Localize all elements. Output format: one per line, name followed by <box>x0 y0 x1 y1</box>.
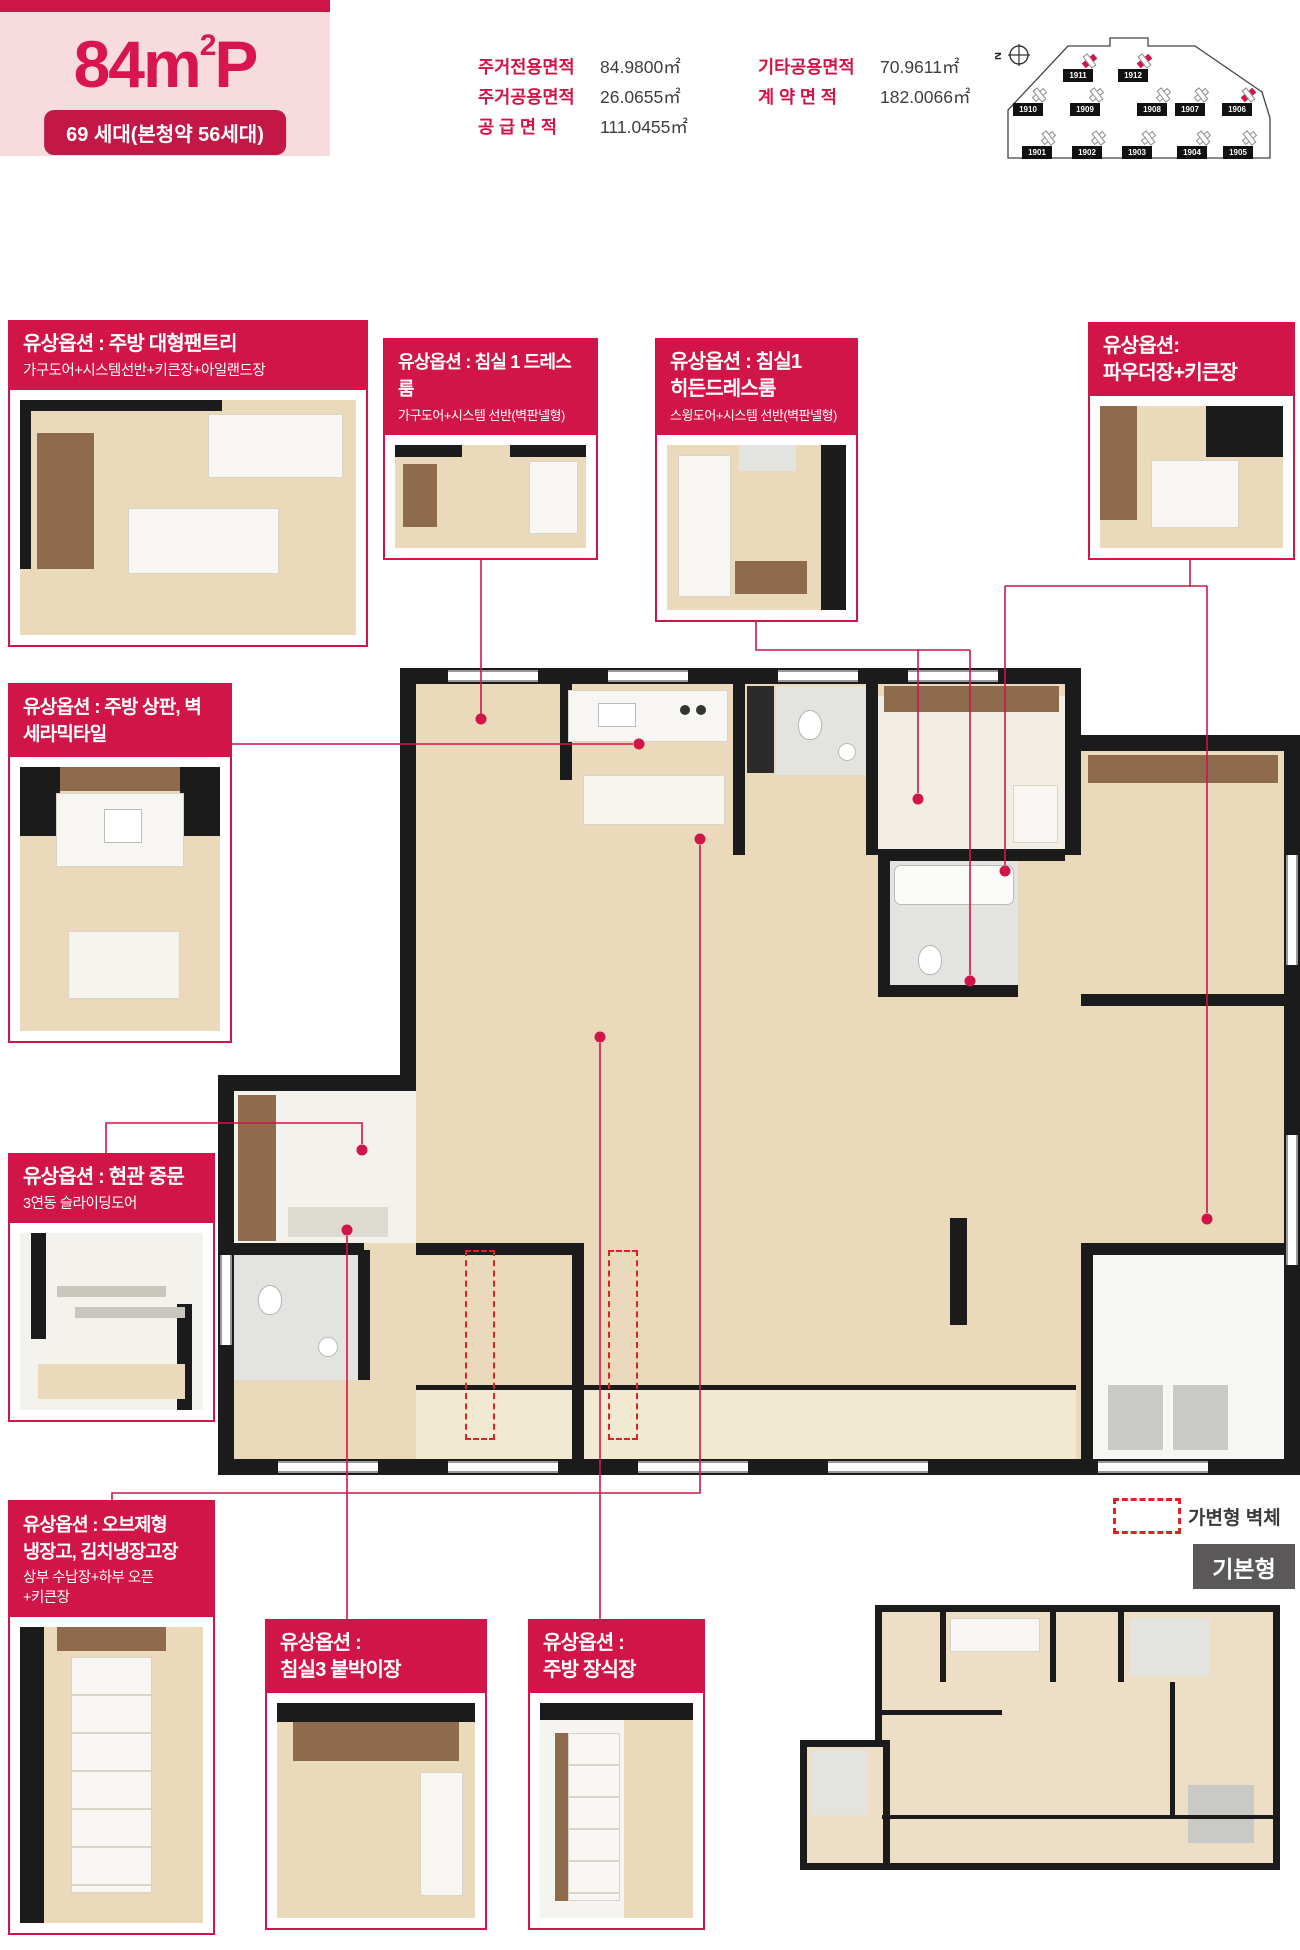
option-subtitle: 스윙도어+시스템 선반(벽판넬형) <box>670 406 843 426</box>
wall <box>572 1243 584 1459</box>
window <box>1098 1461 1208 1473</box>
option-box-kitchen-ceramic-tile: 유상옵션 : 주방 상판, 벽 세라믹타일 <box>8 683 232 1043</box>
spec-value: 26.0655㎡ <box>600 87 681 107</box>
option-plan-image <box>667 445 846 610</box>
option-box-kitchen-pantry: 유상옵션 : 주방 대형팬트리 가구도어+시스템선반+키큰장+아일랜드장 <box>8 320 368 647</box>
option-plan-image <box>395 445 586 548</box>
option-box-fridge-cabinet: 유상옵션 : 오브제형 냉장고, 김치냉장고장 상부 수납장+하부 오픈 +키큰… <box>8 1500 215 1935</box>
main-floor-plan <box>218 655 1300 1490</box>
option-box-bedroom1-hidden-dressroom: 유상옵션 : 침실1 히든드레스룸 스윙도어+시스템 선반(벽판넬형) <box>655 338 858 622</box>
option-title: 유상옵션 : <box>280 1630 472 1657</box>
sink <box>838 743 856 761</box>
option-header: 유상옵션: 파우더장+키큰장 <box>1090 324 1293 396</box>
building-icon <box>1155 86 1171 102</box>
wall <box>1081 1255 1093 1459</box>
building-icon <box>1081 52 1097 68</box>
bathtub <box>894 865 1014 905</box>
option-subtitle: 가구도어+시스템선반+키큰장+아일랜드장 <box>23 361 353 381</box>
building-number: 1905 <box>1223 146 1253 159</box>
balcony-floor <box>416 1390 1076 1459</box>
wall <box>878 849 1065 861</box>
wall <box>1081 994 1284 1006</box>
option-subtitle: +키큰장 <box>23 1588 200 1608</box>
option-subtitle: 가구도어+시스템 선반(벽판넬형) <box>398 406 583 426</box>
powder-cabinet <box>1013 785 1058 843</box>
building-number: 1908 <box>1137 103 1167 116</box>
unit-type-title: 84m2P <box>0 14 330 114</box>
appliance <box>1108 1385 1163 1450</box>
shoe-closet <box>238 1095 276 1241</box>
toilet <box>918 945 942 975</box>
page: 84m2P 69 세대(본청약 56세대) 주거전용면적84.9800㎡ 주거공… <box>0 0 1300 1950</box>
spec-value: 111.0455㎡ <box>600 117 688 137</box>
wall <box>882 1710 1002 1715</box>
compass-n-label: N <box>995 52 1004 60</box>
wall <box>1050 1612 1056 1682</box>
option-box-bedroom1-dressroom: 유상옵션 : 침실 1 드레스룸 가구도어+시스템 선반(벽판넬형) <box>383 338 598 560</box>
option-title: 파우더장+키큰장 <box>1103 360 1280 387</box>
wall <box>866 684 878 855</box>
window <box>220 1255 232 1345</box>
option-title: 유상옵션 : 오브제형 <box>23 1511 200 1538</box>
appliance <box>1173 1385 1228 1450</box>
unit-size-sup: 2 <box>200 31 215 61</box>
option-header: 유상옵션 : 오브제형 냉장고, 김치냉장고장 상부 수납장+하부 오픈 +키큰… <box>10 1502 213 1617</box>
wall <box>218 1075 416 1091</box>
option-plan-image <box>20 400 356 635</box>
option-title: 주방 장식장 <box>543 1657 690 1684</box>
building-icon <box>1088 86 1104 102</box>
base-floor-plan <box>800 1590 1295 1935</box>
window <box>448 670 538 682</box>
wall <box>1065 735 1300 751</box>
spec-value: 70.9611㎡ <box>880 57 959 77</box>
building-icon <box>1040 129 1056 145</box>
option-header: 유상옵션 : 침실1 히든드레스룸 스윙도어+시스템 선반(벽판넬형) <box>657 340 856 435</box>
spec-label: 주거공용면적 <box>478 84 600 109</box>
wall <box>1081 1243 1284 1255</box>
wall <box>878 861 890 991</box>
unit-type-panel: 84m2P 69 세대(본청약 56세대) <box>0 0 330 156</box>
option-title: 세라믹타일 <box>23 721 217 748</box>
building-number: 1904 <box>1177 146 1207 159</box>
movable-wall-legend-icon <box>1113 1498 1181 1534</box>
building-number: 1912 <box>1118 69 1148 82</box>
wall <box>234 1243 364 1255</box>
kitchen-counter <box>568 690 728 742</box>
entry-mat <box>288 1207 388 1237</box>
wall <box>1284 735 1300 1475</box>
sink <box>318 1337 338 1357</box>
unit-size: 84m <box>74 26 200 102</box>
kitchen-island <box>583 775 725 825</box>
spec-row: 계 약 면 적182.0066㎡ <box>758 84 971 109</box>
unit-plan-code: P <box>214 26 256 102</box>
building-number: 1911 <box>1063 69 1093 82</box>
option-title: 유상옵션: <box>1103 333 1280 360</box>
closet-cabinet <box>1088 755 1278 783</box>
cooktop-burner <box>696 705 706 715</box>
window <box>638 1461 748 1473</box>
wall <box>1065 684 1081 855</box>
wall <box>1170 1682 1175 1817</box>
option-header: 유상옵션 : 주방 상판, 벽 세라믹타일 <box>10 685 230 757</box>
wall <box>940 1612 946 1682</box>
spec-label: 주거전용면적 <box>478 54 600 79</box>
spec-label: 기타공용면적 <box>758 54 880 79</box>
building-icon <box>1193 86 1209 102</box>
option-subtitle: 상부 수납장+하부 오픈 <box>23 1568 200 1588</box>
option-subtitle: 3연동 슬라이딩도어 <box>23 1194 200 1214</box>
wall <box>358 1250 370 1380</box>
building-number: 1901 <box>1022 146 1052 159</box>
option-plan-image <box>540 1703 693 1918</box>
spec-value: 84.9800㎡ <box>600 57 681 77</box>
wall <box>733 684 745 855</box>
wall <box>416 1243 584 1255</box>
wall <box>400 668 416 1091</box>
building-number: 1909 <box>1070 103 1100 116</box>
kitchen-sink <box>598 703 636 727</box>
option-box-kitchen-display-cabinet: 유상옵션 : 주방 장식장 <box>528 1619 705 1930</box>
building-icon <box>1140 129 1156 145</box>
building-icon <box>1241 129 1257 145</box>
window <box>1286 1135 1298 1265</box>
building-icon <box>1090 129 1106 145</box>
wall <box>950 1218 967 1325</box>
base-plan-balcony-line <box>882 1815 1274 1819</box>
building-number: 1902 <box>1072 146 1102 159</box>
option-header: 유상옵션 : 현관 중문 3연동 슬라이딩도어 <box>10 1155 213 1223</box>
window <box>1286 855 1298 965</box>
building-icon <box>1136 52 1152 68</box>
spec-label: 공 급 면 적 <box>478 114 600 139</box>
building-icon <box>1195 129 1211 145</box>
base-plan-bathroom <box>812 1750 867 1815</box>
spec-row: 주거공용면적26.0655㎡ <box>478 84 681 109</box>
base-plan-utility <box>1188 1785 1254 1843</box>
spec-value: 182.0066㎡ <box>880 87 971 107</box>
building-number: 1906 <box>1222 103 1252 116</box>
option-title: 유상옵션 : 주방 상판, 벽 <box>23 694 217 721</box>
building-icon <box>1031 86 1047 102</box>
building-icon <box>1240 86 1256 102</box>
option-title: 히든드레스룸 <box>670 376 843 403</box>
option-title: 유상옵션 : 침실 1 드레스룸 <box>398 349 583 403</box>
site-plan: N 1911 1912 1910 1909 1908 1907 1906 190… <box>995 20 1300 170</box>
accent-top-bar <box>0 0 330 12</box>
window <box>908 670 998 682</box>
spec-row: 공 급 면 적111.0455㎡ <box>478 114 688 139</box>
option-title: 유상옵션 : <box>543 1630 690 1657</box>
option-plan-image <box>20 1627 203 1923</box>
spec-row: 기타공용면적70.9611㎡ <box>758 54 959 79</box>
building-number: 1903 <box>1122 146 1152 159</box>
base-plan-kitchen-counter <box>950 1618 1040 1652</box>
option-header: 유상옵션 : 주방 장식장 <box>530 1621 703 1693</box>
option-title: 유상옵션 : 주방 대형팬트리 <box>23 331 353 358</box>
movable-wall-legend-label: 가변형 벽체 <box>1188 1503 1281 1530</box>
option-header: 유상옵션 : 주방 대형팬트리 가구도어+시스템선반+키큰장+아일랜드장 <box>10 322 366 390</box>
option-plan-image <box>1100 406 1283 548</box>
base-plan-bathroom <box>1130 1618 1210 1676</box>
option-box-bedroom3-closet: 유상옵션 : 침실3 붙박이장 <box>265 1619 487 1930</box>
option-plan-image <box>277 1703 475 1918</box>
option-plan-image <box>20 1233 203 1410</box>
window <box>448 1461 558 1473</box>
option-title: 침실3 붙박이장 <box>280 1657 472 1684</box>
window <box>828 1461 928 1473</box>
option-plan-image <box>20 767 220 1031</box>
option-header: 유상옵션 : 침실 1 드레스룸 가구도어+시스템 선반(벽판넬형) <box>385 340 596 435</box>
window <box>608 670 688 682</box>
option-header: 유상옵션 : 침실3 붙박이장 <box>267 1621 485 1693</box>
wall <box>878 985 1018 997</box>
bathroom-floor <box>234 1255 358 1380</box>
option-box-powder-tall-cabinet: 유상옵션: 파우더장+키큰장 <box>1088 322 1295 560</box>
option-title: 유상옵션 : 현관 중문 <box>23 1164 200 1191</box>
base-plan-label: 기본형 <box>1193 1544 1295 1589</box>
option-box-entry-door: 유상옵션 : 현관 중문 3연동 슬라이딩도어 <box>8 1153 215 1422</box>
spec-row: 주거전용면적84.9800㎡ <box>478 54 681 79</box>
spec-label: 계 약 면 적 <box>758 84 880 109</box>
toilet <box>258 1285 282 1315</box>
window <box>278 1461 378 1473</box>
wall <box>1118 1612 1124 1682</box>
window <box>778 670 858 682</box>
toilet <box>798 710 822 740</box>
option-title: 유상옵션 : 침실1 <box>670 349 843 376</box>
cooktop-burner <box>680 705 690 715</box>
building-number: 1910 <box>1013 103 1043 116</box>
duct-shaft <box>747 686 774 773</box>
option-title: 냉장고, 김치냉장고장 <box>23 1538 200 1565</box>
movable-wall-dashed <box>465 1250 495 1440</box>
wardrobe-cabinet <box>884 686 1059 712</box>
movable-wall-dashed <box>608 1250 638 1440</box>
household-count-badge: 69 세대(본청약 56세대) <box>44 110 286 155</box>
building-number: 1907 <box>1175 103 1205 116</box>
